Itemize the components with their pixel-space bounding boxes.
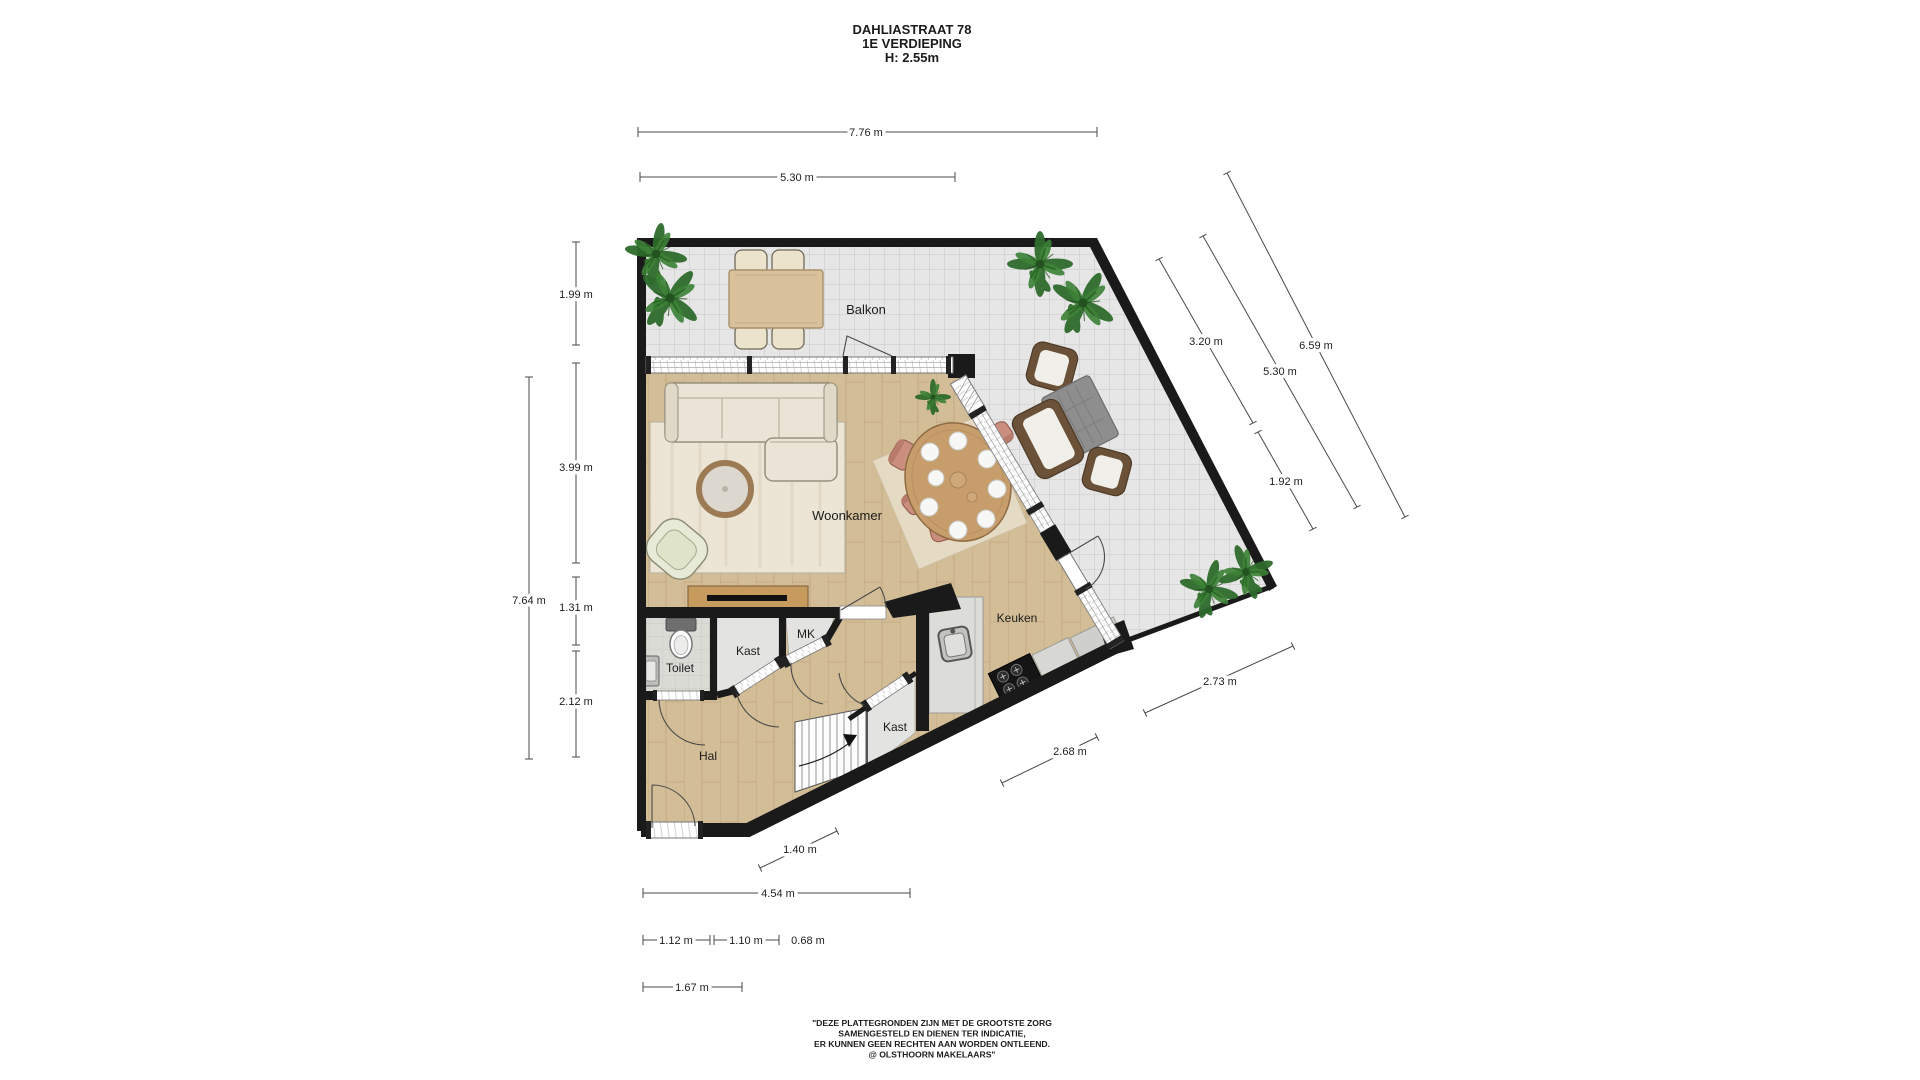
kitchen-sink: [937, 626, 972, 663]
label-balkon: Balkon: [846, 302, 886, 317]
dim-label: 1.10 m: [729, 935, 763, 947]
wall-keuken-left: [916, 596, 929, 731]
door-toilet: [655, 691, 702, 700]
label-kast2: Kast: [883, 720, 908, 734]
dim-label: 1.31 m: [559, 602, 593, 614]
label-toilet: Toilet: [666, 661, 695, 675]
dim-label: 1.40 m: [783, 844, 817, 856]
disclaimer-line: SAMENGESTELD EN DIENEN TER INDICATIE,: [838, 1029, 1025, 1039]
disclaimer: "DEZE PLATTEGRONDEN ZIJN MET DE GROOTSTE…: [812, 1018, 1052, 1060]
plan-title: DAHLIASTRAAT 78 1E VERDIEPING H: 2.55m: [853, 22, 972, 65]
dim-label: 6.59 m: [1299, 340, 1333, 352]
dim-label: 1.67 m: [675, 982, 709, 994]
floor-plan-canvas: Balkon Woonkamer Keuken Toilet Kast MK K…: [0, 0, 1920, 1080]
disclaimer-line: @ OLSTHOORN MAKELAARS": [868, 1050, 995, 1060]
dim-label: 3.99 m: [559, 462, 593, 474]
door-entrance: [649, 822, 699, 838]
disclaimer-line: ER KUNNEN GEEN RECHTEN AAN WORDEN ONTLEE…: [814, 1039, 1050, 1049]
tv: [707, 595, 787, 601]
dim-label: 5.30 m: [780, 172, 814, 184]
table-bowl: [967, 492, 977, 502]
dim-label: 7.76 m: [849, 127, 883, 139]
toilet-cistern: [666, 618, 696, 631]
balcony-table: [729, 270, 823, 328]
label-mk: MK: [797, 627, 815, 641]
dim-label: 2.12 m: [559, 696, 593, 708]
dim-label: 1.92 m: [1269, 476, 1303, 488]
disclaimer-line: "DEZE PLATTEGRONDEN ZIJN MET DE GROOTSTE…: [812, 1018, 1052, 1028]
dim-label: 5.30 m: [1263, 366, 1297, 378]
wall-toilet-right: [710, 617, 717, 700]
label-keuken: Keuken: [997, 611, 1038, 625]
title-height: H: 2.55m: [885, 50, 939, 65]
label-woonkamer: Woonkamer: [812, 508, 883, 523]
wall-divider-woonkamer: [641, 607, 840, 618]
dim-keuken-diag: [1000, 733, 1099, 786]
door-woonkamer-hal: [840, 606, 886, 619]
dim-label: 2.73 m: [1203, 676, 1237, 688]
dim-label: 1.12 m: [659, 935, 693, 947]
label-kast: Kast: [736, 644, 761, 658]
dim-label: 7.64 m: [512, 595, 546, 607]
dim-left-total: [525, 377, 533, 759]
label-hal: Hal: [699, 749, 717, 763]
title-address: DAHLIASTRAAT 78: [853, 22, 972, 37]
floor-plan-page: Balkon Woonkamer Keuken Toilet Kast MK K…: [0, 0, 1920, 1080]
dim-label: 1.99 m: [559, 289, 593, 301]
coffee-table: [699, 463, 751, 515]
dim-label: 3.20 m: [1189, 336, 1223, 348]
dim-label: 2.68 m: [1053, 746, 1087, 758]
table-bowl: [950, 472, 966, 488]
dim-label: 4.54 m: [761, 888, 795, 900]
title-floor: 1E VERDIEPING: [862, 36, 962, 51]
dim-label: 0.68 m: [791, 935, 825, 947]
